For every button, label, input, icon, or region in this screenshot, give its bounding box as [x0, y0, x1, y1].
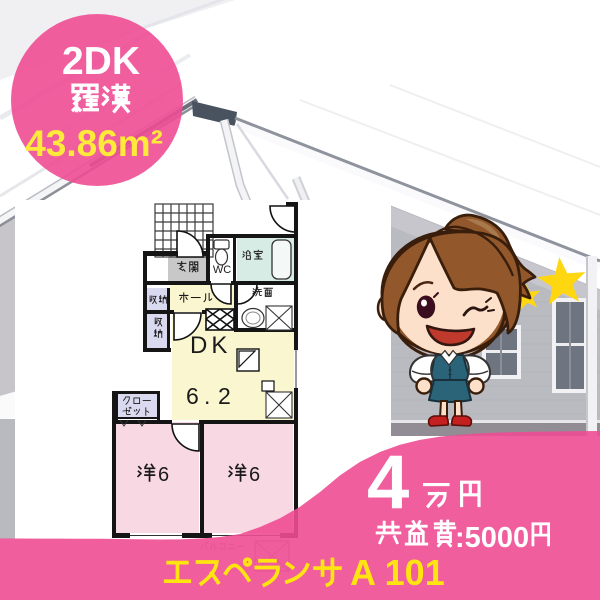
svg-text:WC: WC [213, 264, 231, 276]
svg-text::5000: :5000 [455, 522, 529, 554]
svg-text:2DK: 2DK [62, 40, 140, 83]
svg-text:43.86m²: 43.86m² [25, 123, 163, 164]
svg-text:A 101: A 101 [350, 552, 445, 593]
svg-text:.: . [204, 383, 210, 409]
svg-text:4: 4 [367, 440, 409, 525]
svg-text:DK: DK [190, 332, 231, 359]
svg-text:6: 6 [249, 464, 260, 486]
svg-text:6: 6 [158, 464, 169, 486]
svg-text:6: 6 [186, 383, 199, 409]
svg-text:2: 2 [218, 383, 231, 409]
